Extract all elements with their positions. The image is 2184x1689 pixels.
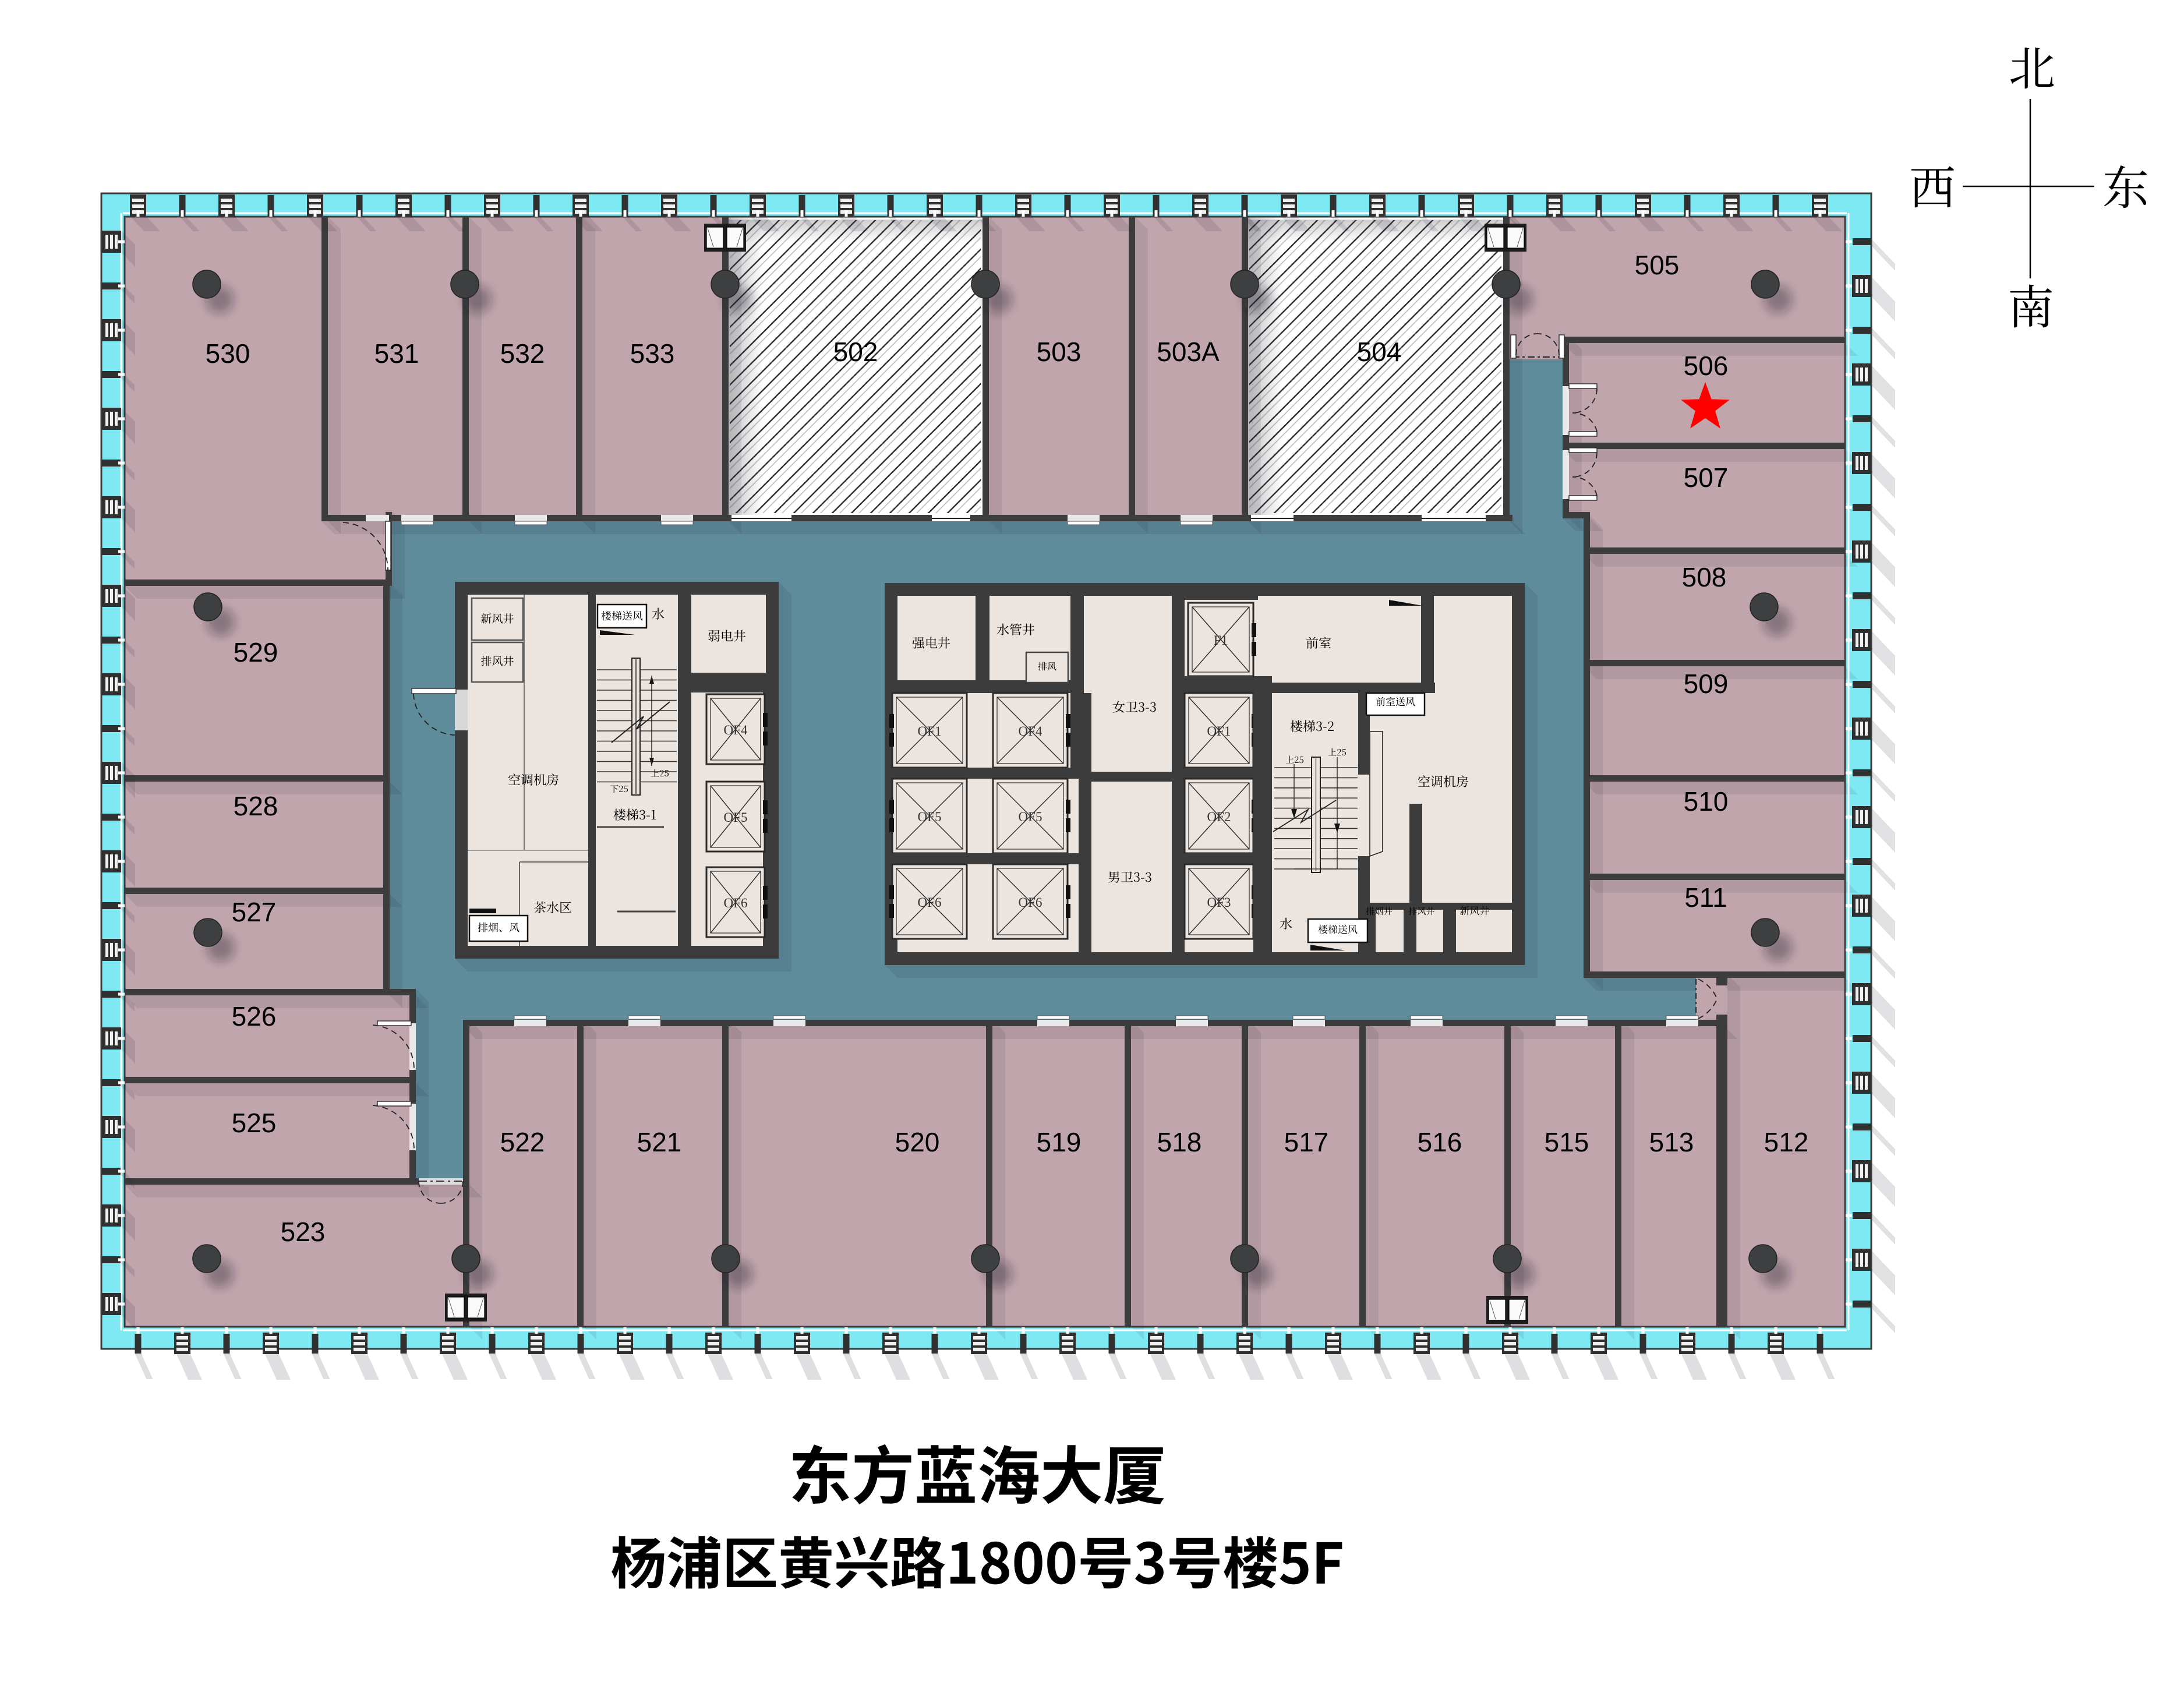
svg-text:507: 507 [1684,462,1729,493]
svg-text:518: 518 [1157,1127,1202,1157]
svg-text:527: 527 [232,897,277,927]
svg-text:515: 515 [1545,1127,1589,1157]
svg-text:502: 502 [833,337,878,367]
svg-text:OF4: OF4 [1019,724,1042,739]
svg-text:523: 523 [281,1217,326,1247]
svg-text:517: 517 [1284,1127,1329,1157]
svg-text:533: 533 [630,338,675,369]
svg-text:525: 525 [232,1108,277,1138]
svg-text:508: 508 [1682,562,1727,592]
svg-text:OF5: OF5 [1019,810,1042,824]
svg-text:512: 512 [1764,1127,1809,1157]
svg-text:OF3: OF3 [1207,895,1231,910]
svg-text:530: 530 [206,338,250,369]
svg-text:OF2: OF2 [1207,810,1231,824]
svg-text:505: 505 [1635,250,1680,280]
svg-text:503A: 503A [1157,337,1220,367]
svg-text:503: 503 [1037,337,1082,367]
svg-text:OF4: OF4 [724,723,748,737]
svg-text:511: 511 [1684,882,1727,913]
svg-text:506: 506 [1684,351,1729,381]
svg-text:OF6: OF6 [724,896,748,910]
svg-text:OF6: OF6 [918,895,942,910]
svg-text:OF5: OF5 [918,810,942,824]
svg-text:526: 526 [232,1001,277,1031]
svg-text:522: 522 [500,1127,545,1157]
svg-text:F1: F1 [1214,633,1228,648]
svg-text:OF1: OF1 [918,724,942,739]
svg-text:531: 531 [374,338,419,369]
svg-text:OF5: OF5 [724,810,748,825]
svg-text:521: 521 [637,1127,682,1157]
svg-text:520: 520 [895,1127,940,1157]
svg-text:OF6: OF6 [1019,895,1042,910]
svg-text:529: 529 [234,637,278,667]
svg-text:513: 513 [1649,1127,1694,1157]
svg-text:509: 509 [1684,669,1729,699]
svg-text:532: 532 [500,338,545,369]
svg-text:504: 504 [1357,337,1402,367]
svg-text:519: 519 [1037,1127,1082,1157]
svg-text:516: 516 [1418,1127,1462,1157]
svg-text:OF1: OF1 [1207,724,1231,739]
svg-text:528: 528 [234,791,278,821]
svg-text:510: 510 [1684,786,1729,817]
